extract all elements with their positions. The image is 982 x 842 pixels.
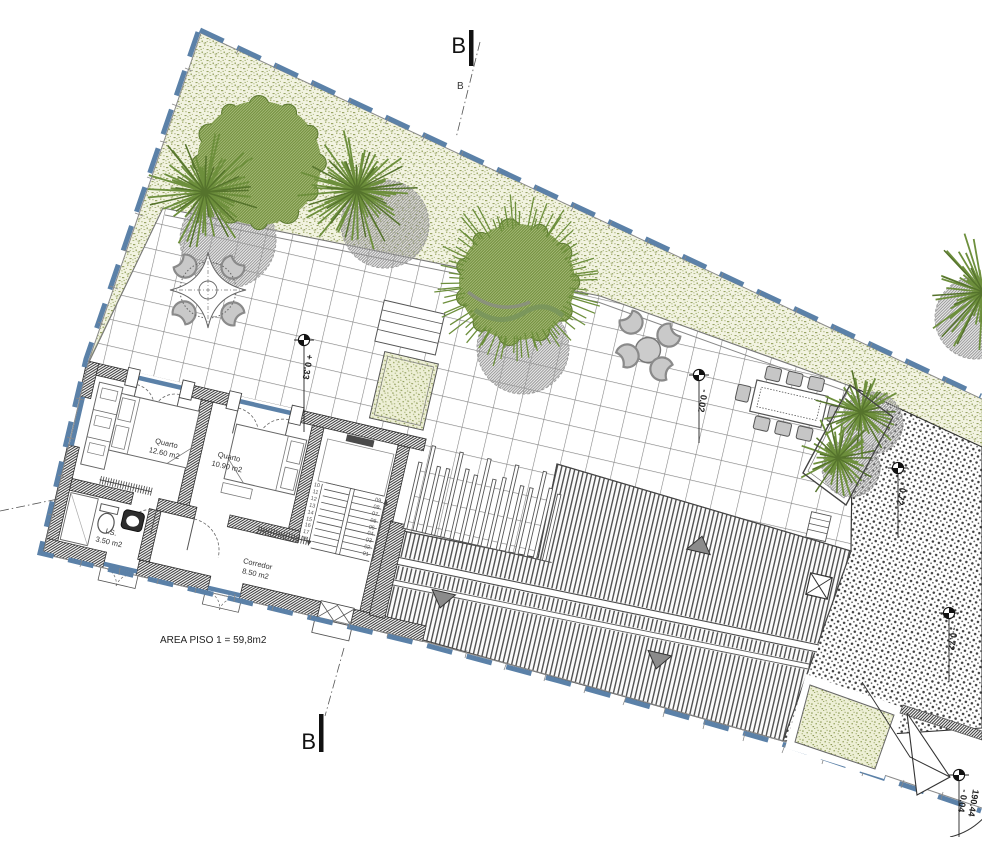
svg-text:AREA PISO 1 = 59,8m2: AREA PISO 1 = 59,8m2 [160,635,267,646]
svg-text:B: B [457,81,464,92]
svg-text:B: B [451,33,466,58]
svg-text:B: B [301,729,316,754]
